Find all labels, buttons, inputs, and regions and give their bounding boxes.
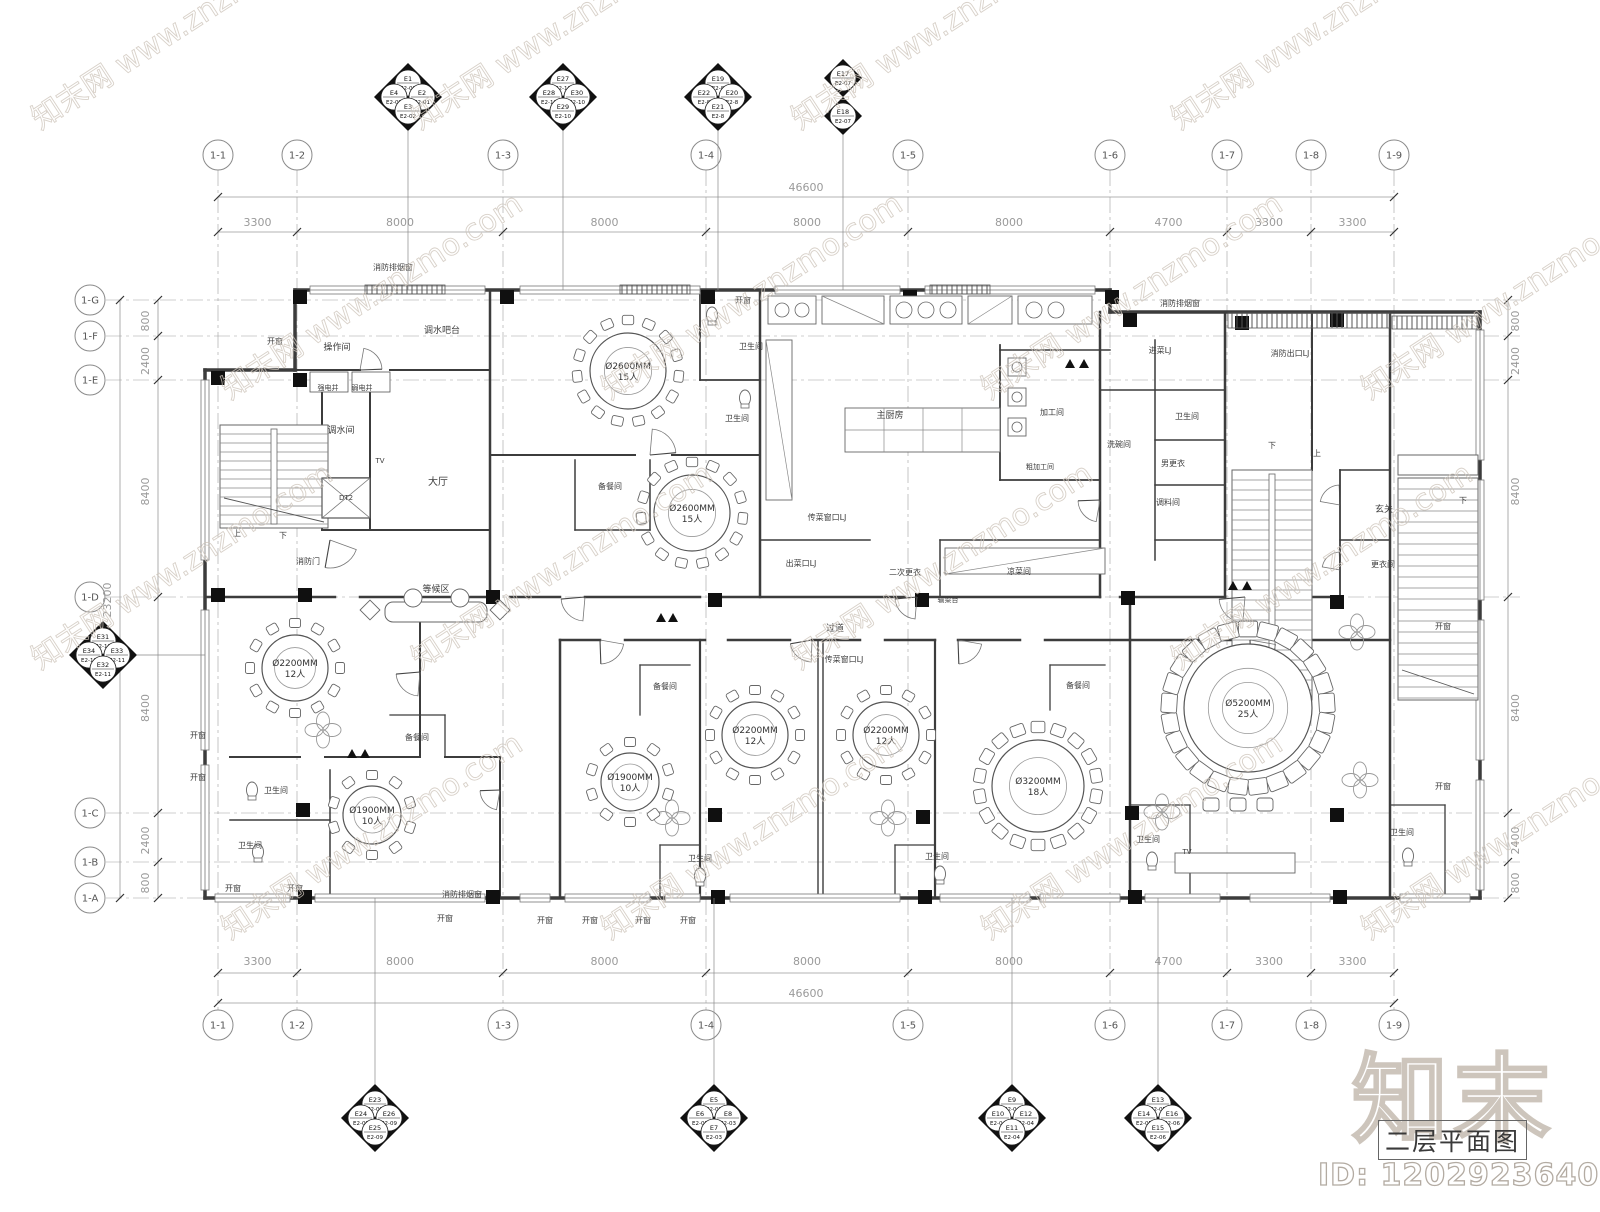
banquet-chair [1161,712,1180,734]
marker-code: E5 [710,1096,718,1104]
marker-code: E4 [390,89,398,97]
banquet-chair [725,689,739,702]
marker-subcode: E2-8 [712,114,725,120]
grid-bubble-label: 1-2 [289,151,305,162]
grid-bubble-label: 1-9 [1386,1021,1402,1032]
banquet-chair [572,370,582,382]
tv-cabinet [1175,853,1295,873]
room-label: 加工间 [1040,407,1064,417]
banquet-chair [1161,693,1178,713]
column [711,890,725,904]
decor-motif [1342,774,1360,787]
grid-bubble-label: 1-C [82,809,99,820]
room-label: 开窗 [437,913,453,923]
dim-segment-bottom: 8000 [995,955,1023,968]
grid-bubble-label: 1-1 [210,151,226,162]
door [396,672,420,696]
door-leaf [600,640,601,664]
banquet-chair [655,547,670,561]
banquet-chair [840,705,853,719]
banquet-chair [642,318,656,331]
section-mark [1065,359,1075,368]
marker-code: E32 [97,661,109,669]
room-label: 卫生间 [925,851,949,861]
banquet-chair [737,512,747,524]
room-label: 调水间 [327,424,354,436]
dim-segment-right: 800 [1509,873,1522,894]
marker-code: E29 [557,103,569,111]
decor-motif [672,812,690,825]
room-label: 更衣间 [1371,559,1395,569]
marker-code: E19 [712,75,724,83]
marker-subcode: E2-07 [835,119,851,125]
section-mark [668,613,678,622]
column [500,290,514,304]
dim-segment-left: 2400 [139,347,152,375]
marker-layer: E1E2-01E4E2-02E2E2-01E3E2-02E27E2-10E28E… [69,59,1192,1152]
door-leaf [561,597,585,599]
dim-segment-top: 3300 [244,216,272,229]
marker-code: E33 [111,647,123,655]
grid-bubble-label: 1-6 [1102,1021,1118,1032]
room-label: 等候区 [422,583,449,595]
room-label: 大厅 [428,475,448,488]
dim-total-top: 46600 [789,181,824,194]
marker-code: E21 [712,103,724,111]
banquet-chair [341,776,355,790]
door [600,640,624,664]
banquet-chair [1050,723,1067,738]
table-diameter-label: Ø1900MM [607,772,653,783]
marker-code: E16 [1166,1110,1178,1118]
marker-code: E6 [696,1110,704,1118]
decor-motif [317,712,330,730]
banquet-chair [673,370,683,382]
banquet-chair [586,788,598,801]
column [916,810,930,824]
banquet-chair [1081,807,1098,825]
banquet-chair [918,705,931,719]
room-label: 进菜LJ [1149,345,1172,355]
dim-segment-bottom: 8000 [793,955,821,968]
table-capacity-label: 12人 [285,669,305,680]
grid-bubble-label: 1-F [82,332,98,343]
room-label: 消防门 [296,556,320,566]
table-diameter-label: Ø3200MM [1015,776,1061,787]
banquet-chair [310,622,324,635]
decor-motif [666,800,679,818]
decor-motif [882,818,895,836]
door-leaf [360,369,382,370]
dim-segment-right: 8400 [1509,478,1522,506]
column [298,588,312,602]
dim-segment-bottom: 3300 [1255,955,1283,968]
banquet-chair [583,330,598,345]
column [293,290,307,304]
room-label: 消防排烟窗 [442,889,482,899]
door [1320,485,1340,505]
room-label: 卫生间 [238,840,262,850]
room-label: 下 [1268,441,1276,450]
column [1330,595,1344,609]
cushion [404,589,422,607]
section-mark [1079,359,1089,368]
door-leaf [396,672,420,674]
banquet-chair [1031,721,1045,732]
kitchen-equipment [890,296,962,324]
room-label: 洗碗间 [1107,439,1131,449]
door-leaf [958,640,959,664]
grid-bubble-label: 1-8 [1303,1021,1319,1032]
toilet [1403,848,1414,864]
section-mark [347,749,357,758]
column [293,373,307,387]
door [360,348,382,370]
banquet-chair [795,730,804,741]
banquet-chair [290,708,301,717]
watermark-tile: 知末网 www.znzmo.com [215,726,529,947]
banquet-chair [662,763,674,776]
marker-code: E10 [992,1110,1004,1118]
marker-code: E7 [710,1124,718,1132]
dim-segment-top: 3300 [1339,216,1367,229]
banquet-chair [770,689,784,702]
door-leaf [1339,485,1340,505]
decor-motif [1339,626,1357,639]
marker-subcode: E2-10 [555,114,571,120]
marker-subcode: E2-06 [1150,1135,1166,1141]
grid-bubble-label: 1-5 [900,151,916,162]
grid-bubble-label: 1-8 [1303,151,1319,162]
banquet-chair [265,622,279,635]
room-label: 消防排烟窗 [1160,298,1200,308]
electrical-marker: E5E2-03E6E2-03E8E2-03E7E2-03 [680,1084,748,1152]
banquet-chair [249,683,262,697]
decor-motif [1360,774,1378,787]
dim-segment-bottom: 3300 [1339,955,1367,968]
door [958,640,982,664]
banquet-chair [787,750,800,764]
decor-motif [305,724,323,737]
banquet-chair [249,638,262,652]
grid-bubble-label: 1-1 [210,1021,226,1032]
marker-code: E20 [726,89,738,97]
banquet-chair [335,663,344,674]
banquet-chair [973,768,987,784]
grid-bubble-label: 1-4 [698,1021,714,1032]
banquet-chair [750,775,761,784]
electrical-marker: E19E2-8E22E2-8E20E2-8E21E2-8 [684,63,752,131]
room-label: 调料间 [1156,497,1180,507]
banquet-chair [646,743,660,757]
column [708,593,722,607]
banquet-chair [1050,834,1067,849]
column [296,803,310,817]
banquet-chair [611,415,624,427]
column [918,890,932,904]
room-label: 卫生间 [1390,827,1414,837]
electrical-marker: E13E2-05E14E2-05E16E2-06E15E2-06 [1124,1084,1192,1152]
kitchen-equipment [1008,418,1026,436]
room-label: 输菜台 [938,595,959,604]
banquet-chair [675,557,688,569]
banquet-chair [388,776,402,790]
marker-code: E1 [404,75,412,83]
room-label: 开窗 [190,772,206,782]
table-capacity-label: 15人 [682,514,702,525]
column [1121,591,1135,605]
toilet-tank [1404,862,1412,866]
table-capacity-label: 25人 [1238,709,1258,720]
banquet-chair [901,689,915,702]
grid-bubble-label: 1-6 [1102,151,1118,162]
door-leaf [480,790,500,791]
banquet-chair [265,700,279,713]
grid-bubble-label: 1-G [81,296,99,307]
banquet-chair [918,750,931,764]
room-label: 卫生间 [264,785,288,795]
banquet-table: Ø2200MM12人 [705,685,804,784]
banquet-chair [723,472,738,487]
banquet-chair [577,389,591,404]
marker-code: E26 [383,1110,395,1118]
banquet-chair [725,767,739,780]
banquet-chair [591,405,606,419]
banquet-chair [327,638,340,652]
toilet-tank [1148,866,1156,870]
decor-motif [882,800,895,818]
room-label: 卫生间 [739,341,763,351]
room-label: 开窗 [1435,781,1451,791]
banquet-chair [1067,822,1085,840]
smoke-vent-strip [620,285,690,294]
table-diameter-label: Ø2200MM [272,658,318,669]
banquet-chair [1009,723,1026,738]
decor-motif [666,818,679,836]
smoke-vent-strip [1228,313,1390,328]
floorplan-canvas: 1-11-11-21-21-31-31-41-41-51-51-61-61-71… [0,0,1600,1212]
room-label: 开窗 [225,883,241,893]
room-label: 弱电井 [352,383,373,392]
banquet-chair [632,415,645,427]
dim-segment-left: 8400 [139,694,152,722]
grid-bubble-label: 1-9 [1386,151,1402,162]
banquet-chair [622,315,633,324]
toilet-tank [254,858,262,862]
door-leaf [1078,500,1100,501]
banquet-chair [979,748,996,766]
marker-subcode: E2-04 [1004,1135,1020,1141]
banquet-chair [245,663,254,674]
banquet-chair [705,730,714,741]
table-diameter-label: Ø2200MM [732,725,778,736]
banquet-table: Ø2200MM12人 [245,618,344,717]
banquet-chair [1081,748,1098,766]
room-label: 备餐间 [598,481,622,491]
column [1333,890,1347,904]
banquet-chair [696,557,709,569]
grid-bubble-label: 1-3 [495,151,511,162]
column [486,890,500,904]
room-label: 开窗 [1435,621,1451,631]
banquet-chair [1313,672,1334,695]
watermark-tile: 知末网 www.znzmo.com [405,456,719,677]
floorplan-svg: 1-11-11-21-21-31-31-41-41-51-51-61-61-71… [0,0,1600,1212]
decor-motif [317,730,330,748]
table-capacity-label: 18人 [1028,787,1048,798]
banquet-chair [1009,834,1026,849]
room-label: 强电井 [318,383,339,392]
room-label: 调水吧台 [424,324,460,336]
banquet-chair [586,763,598,776]
column [1128,890,1142,904]
decor-motif [1354,762,1367,780]
banquet-chair [881,685,892,694]
banquet-chair [662,788,674,801]
banquet-chair [573,348,585,362]
dim-segment-left: 8400 [139,478,152,506]
room-label: 卫生间 [725,413,749,423]
banquet-table: Ø3200MM18人 [973,721,1103,850]
dim-segment-bottom: 8000 [386,955,414,968]
marker-code: E11 [1006,1124,1018,1132]
grid-bubble-label: 1-A [82,894,99,905]
banquet-chair [770,767,784,780]
banquet-chair [926,730,935,741]
banquet-chair [1067,732,1085,750]
table-diameter-label: Ø5200MM [1225,698,1271,709]
banquet-chair [787,705,800,719]
room-label: 上 [1313,449,1321,458]
marker-code: E30 [571,89,583,97]
toilet [1147,852,1158,868]
watermark-tile: 知末网 www.znzmo.com [785,0,1099,137]
banquet-chair [856,689,870,702]
marker-code: E9 [1008,1096,1016,1104]
decor-motif [888,812,906,825]
electrical-marker: E23E2-09E24E2-09E26E2-09E25E2-09 [341,1084,409,1152]
banquet-chair [881,775,892,784]
section-mark [360,749,370,758]
side-table [360,600,380,620]
banquet-chair [715,547,730,561]
dim-segment-top: 8000 [591,216,619,229]
column [1330,808,1344,822]
banquet-chair [979,807,996,825]
dim-segment-left: 800 [139,311,152,332]
marker-code: E8 [724,1110,732,1118]
dim-segment-bottom: 3300 [244,955,272,968]
dim-segment-top: 8000 [386,216,414,229]
cushion [451,589,469,607]
room-label: 出菜口LJ [786,558,817,568]
grid-bubble-label: 1-5 [900,1021,916,1032]
marker-subcode: E2-03 [706,1135,722,1141]
room-label: TV [374,457,384,465]
banquet-chair [599,807,613,821]
room-label: 粗加工间 [1026,462,1054,471]
marker-code: E22 [698,89,710,97]
room-label: 开窗 [680,915,696,925]
room-label: 备餐间 [1066,680,1090,690]
column [708,808,722,822]
dim-segment-left: 2400 [139,827,152,855]
room-label: 卫生间 [1175,411,1199,421]
banquet-chair [665,389,679,404]
table-capacity-label: 10人 [620,783,640,794]
banquet-chair [709,750,722,764]
decor-motif [1357,626,1375,639]
banquet-chair [625,817,636,826]
door [561,597,585,621]
grid-bubble-label: 1-3 [495,1021,511,1032]
room-label: TV [1181,848,1191,856]
room-label: 凉菜间 [1007,566,1031,576]
electrical-marker: E9E2-04E10E2-04E12E2-04E11E2-04 [978,1084,1046,1152]
banquet-chair [836,730,845,741]
toilet-tank [248,796,256,800]
smoke-vent-strip [930,285,990,294]
decor-motif [870,812,888,825]
dim-segment-top: 4700 [1155,216,1183,229]
banquet-chair [729,531,743,546]
banquet-chair [625,737,636,746]
dim-segment-top: 8000 [793,216,821,229]
marker-code: E15 [1152,1124,1164,1132]
dim-segment-bottom: 4700 [1155,955,1183,968]
banquet-chair [290,618,301,627]
toilet [247,782,258,798]
banquet-chair [734,490,746,504]
table-capacity-label: 12人 [745,736,765,747]
marker-code: E14 [1138,1110,1150,1118]
room-label: 男更衣 [1161,458,1185,468]
banquet-chair [600,318,614,331]
decor-motif [323,724,341,737]
room-label: 下 [279,531,287,540]
decor-motif [1354,780,1367,798]
grid-bubble-label: 1-E [82,376,98,387]
column [211,588,225,602]
section-mark [656,613,666,622]
dim-segment-left: 800 [139,873,152,894]
marker-code: E23 [369,1096,381,1104]
watermark-tile: 知末网 www.znzmo.com [1165,0,1479,137]
banquet-chair [646,807,660,821]
door [480,790,500,810]
banquet-chair [367,770,378,779]
banquet-chair [973,788,987,804]
banquet-chair [709,705,722,719]
room-label: 开窗 [537,915,553,925]
marker-subcode: E2-11 [95,672,111,678]
room-label: DT2 [339,494,353,502]
grid-bubble-label: 1-2 [289,1021,305,1032]
marker-code: E27 [557,75,569,83]
banquet-chair [1318,693,1335,713]
room-label: 传菜窗口LJ [808,512,847,522]
toilet-tank [936,880,944,884]
room-label: 消防出口LJ [1271,348,1310,358]
room-label: 主厨房 [876,409,903,421]
door [650,429,676,455]
chair [1257,798,1273,811]
door [1078,500,1100,522]
dim-segment-bottom: 8000 [591,955,619,968]
dim-total-bottom: 46600 [789,987,824,1000]
banquet-chair [991,822,1009,840]
grid-bubble-label: 1-7 [1219,151,1235,162]
